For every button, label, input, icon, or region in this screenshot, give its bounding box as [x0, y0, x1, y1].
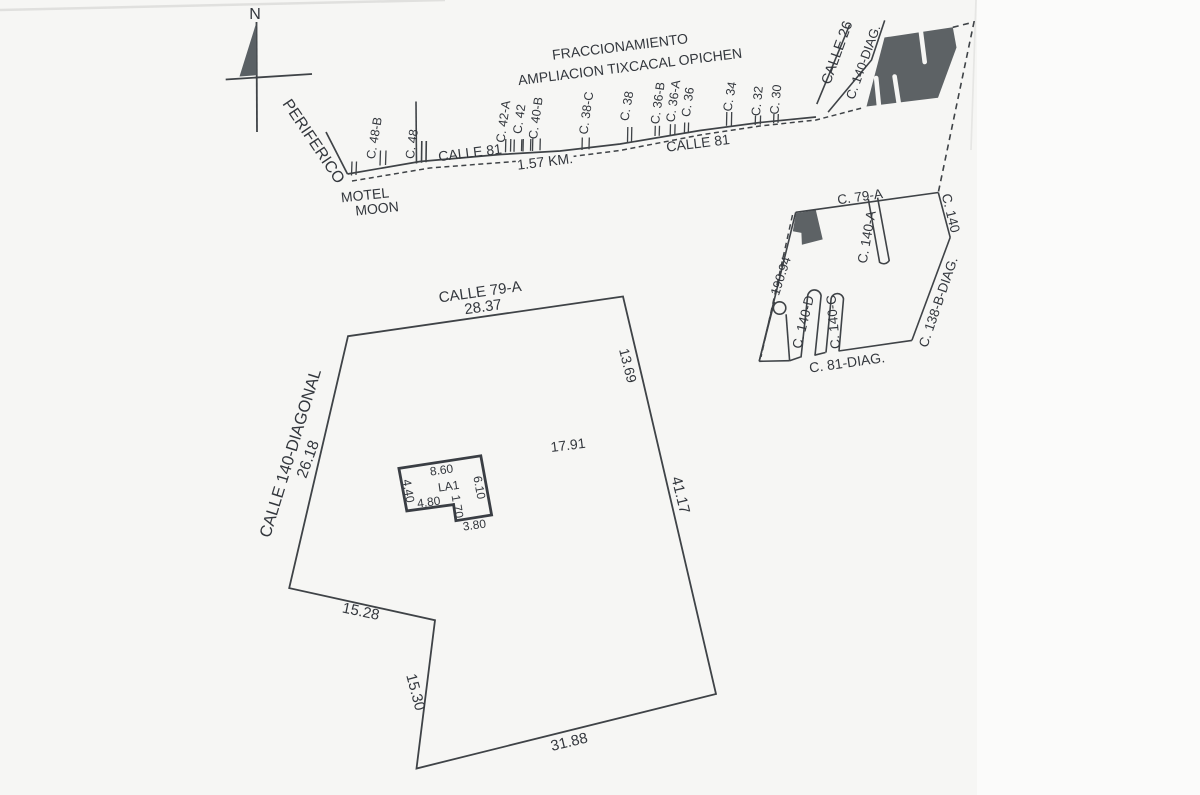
svg-text:N: N: [249, 6, 261, 23]
svg-text:LA1: LA1: [437, 478, 460, 495]
